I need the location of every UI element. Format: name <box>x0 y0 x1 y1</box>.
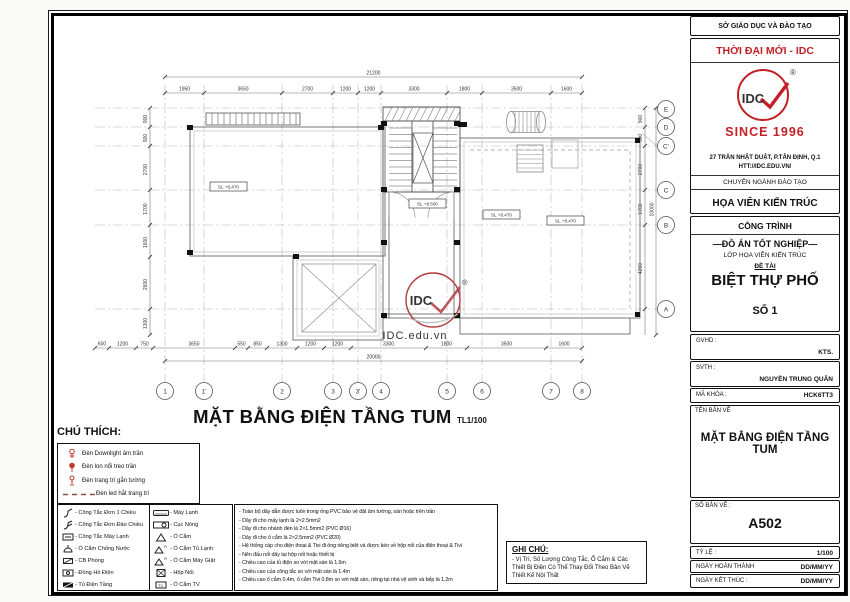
level-label: SL +8.500 <box>417 201 438 206</box>
legend-row: Đèn lon nổi treo trần <box>62 461 199 475</box>
svg-text:IDC: IDC <box>742 91 765 106</box>
titleblock-svth: SVTH : NGUYỄN TRUNG QUÂN <box>690 361 840 387</box>
washer-socket-icon: R <box>153 556 170 566</box>
dim: 1700 <box>143 203 149 214</box>
electric-meter-icon <box>61 568 75 578</box>
waterproof-socket-icon <box>61 544 75 554</box>
dim: 3500 <box>511 87 522 93</box>
legend-row: R- Ổ Cắm Tủ Lạnh <box>153 543 232 555</box>
dim: 1300 <box>276 342 287 348</box>
titleblock-dept: SỞ GIÁO DỤC VÀ ĐÀO TẠO <box>690 16 840 36</box>
grid-bubble: D <box>664 125 669 132</box>
floor-plan: IDC.edu.vn 21200 1950 3650 2700 1200 120… <box>50 60 686 405</box>
floor-panel-icon <box>61 580 75 590</box>
level-label: SL +8.470 <box>218 184 239 189</box>
legend-row: R- Ổ Cắm Máy Giặt <box>153 555 232 567</box>
dim: 2700 <box>638 164 644 175</box>
idc-stamp: IDC ® <box>406 273 468 327</box>
note-line: - Dây đi cho nhánh đèn là 2×1.5mm2 (PVC … <box>239 525 493 534</box>
legend-row: - Tủ Điện Tầng <box>61 579 149 591</box>
sheetname-label: TÊN BẢN VẼ <box>691 406 839 414</box>
scale-value: 1/100 <box>817 550 833 557</box>
level-labels: SL +8.470 SL +8.500 SL +8.470 SL +8.470 <box>210 182 584 225</box>
grid-bubble: C <box>664 188 669 195</box>
titleblock-scale: TỶ LỆ : 1/100 <box>690 546 840 559</box>
legend-row: - Ổ Cắm Chống Nước <box>61 543 149 555</box>
sheetname-value: MẶT BẰNG ĐIỆN TẦNG TUM <box>691 414 839 456</box>
level-label: SL +8.470 <box>491 212 512 217</box>
dim: 1600 <box>561 87 572 93</box>
note-line: - Toàn bộ dây dẫn được luồn trong ống PV… <box>239 508 493 517</box>
legend-title: CHÚ THÍCH: <box>57 426 121 438</box>
date2-value: DD/MM/YY <box>801 578 834 585</box>
dim-right-total: 10000 <box>650 202 656 216</box>
legend-row: Đèn trang trí gắn tường <box>62 474 199 488</box>
grid-bubble: C' <box>663 144 669 151</box>
stair-hatch <box>385 107 460 121</box>
legend-label: - Hộp Nối <box>170 570 194 576</box>
legend-label: - Ổ Cắm Chống Nước <box>75 546 130 552</box>
legend-devices: - Công Tắc Đơn 1 Chiều - Công Tắc Đơn Đả… <box>57 504 233 591</box>
legend-label: - Công Tắc Đơn Đảo Chiều <box>75 522 143 528</box>
brand-title: THỜI ĐẠI MỚI - IDC <box>691 39 839 63</box>
legend-label: - Tủ Điện Tầng <box>75 582 112 588</box>
dim: 3300 <box>383 342 394 348</box>
svth-label: SVTH : <box>696 365 715 371</box>
legend-label: - Công Tắc Đơn 1 Chiều <box>75 510 136 516</box>
sheetno-value: A502 <box>691 509 839 531</box>
note-line: - Chiều cao ổ cắm 0,4m, ổ cắm Tivi 0.8m … <box>239 576 493 585</box>
led-strip-icon <box>62 489 96 500</box>
svg-text:TV: TV <box>158 583 163 588</box>
titleblock-sheetno: SỐ BẢN VẼ : A502 <box>690 500 840 544</box>
dim: 850 <box>253 342 262 348</box>
dim: 3500 <box>501 342 512 348</box>
note-line: - Nên đấu nối dây tại hộp nối hoặc thiết… <box>239 551 493 560</box>
note-line: - Hệ thống cáp cho điện thoại & Tivi đi … <box>239 542 493 551</box>
legend-row: - Công Tắc Đơn 1 Chiều <box>61 507 149 519</box>
grid-bubble: 2 <box>280 389 284 396</box>
date1-value: DD/MM/YY <box>801 564 834 571</box>
sheetno-label: SỐ BẢN VẼ : <box>691 501 839 509</box>
wall-lamp-icon <box>62 475 82 486</box>
stamp-text: IDC <box>410 293 433 308</box>
dim: 750 <box>140 342 149 348</box>
legend-devices-col2: - Máy Lạnh - Cục Nóng - Ổ Cắm R- Ổ Cắm T… <box>149 505 232 590</box>
major-name: HỌA VIÊN KIẾN TRÚC <box>691 190 839 209</box>
ac-outdoor-icon <box>153 520 170 530</box>
dim: 1200 <box>117 342 128 348</box>
led-dashed-line <box>470 150 630 308</box>
legend-label: - Máy Lạnh <box>170 510 198 516</box>
circuit-breaker-icon <box>61 556 75 566</box>
legend-row: - Đồng Hồ Điện <box>61 567 149 579</box>
switch-2way-icon <box>61 520 75 530</box>
ladder <box>517 140 578 172</box>
ghichu-box: GHI CHÚ: - Vị Trí, Số Lượng Công Tắc, Ổ … <box>506 541 647 584</box>
legend-label: - Ổ Cắm Máy Giặt <box>170 558 215 564</box>
date2-label: NGÀY KẾT THÚC : <box>696 578 748 584</box>
idc-logo: IDC ® <box>691 63 839 125</box>
fridge-socket-icon: R <box>153 544 170 554</box>
svg-text:R: R <box>164 556 167 561</box>
dim: 1200 <box>332 342 343 348</box>
ghichu-body: - Vị Trí, Số Lượng Công Tắc, Ổ Cắm & Các… <box>507 555 646 581</box>
dim: 2700 <box>143 164 149 175</box>
plan-title-text: MẶT BẰNG ĐIỆN TẦNG TUM <box>193 406 451 427</box>
note-line: - Dây đi cho máy lạnh là 2×2.5mm2 <box>239 517 493 526</box>
topic-name: BIỆT THỰ PHỐ <box>691 270 839 289</box>
idc-logo-icon: IDC ® <box>691 63 839 125</box>
grid-bubble: 6 <box>480 389 484 396</box>
legend-row: - CB Phòng <box>61 555 149 567</box>
grid-bubbles-rows: E D C' C B A <box>658 101 675 318</box>
dim: 1800 <box>459 87 470 93</box>
grid-bubble: 4 <box>379 389 383 396</box>
legend-label: - CB Phòng <box>75 558 104 564</box>
skylight <box>302 264 376 332</box>
socket-icon <box>153 532 170 542</box>
dept-label: SỞ GIÁO DỤC VÀ ĐÀO TẠO <box>718 23 811 30</box>
legend-label: Đèn led hắt trang trí <box>96 491 149 497</box>
dim: 1200 <box>364 87 375 93</box>
dim: 1200 <box>340 87 351 93</box>
ac-switch-icon <box>61 532 75 542</box>
dim-bottom-total: 20000 <box>367 355 381 361</box>
project-label: CÔNG TRÌNH <box>691 217 839 235</box>
major-label: CHUYÊN NGÀNH ĐÀO TẠO <box>691 176 839 190</box>
water-tank <box>507 112 546 133</box>
since-label: SINCE 1996 <box>691 125 839 139</box>
legend-label: - Ổ Cắm Tủ Lạnh <box>170 546 213 552</box>
drawing-sheet: { "titleblock": { "dept": "SỞ GIÁO DỤC V… <box>0 0 850 602</box>
grid-bubbles-columns: 1 1' 2 3 3' 4 5 6 7 8 <box>157 383 591 400</box>
dimension-texts: 21200 1950 3650 2700 1200 1200 3300 1800… <box>98 71 656 361</box>
svth-value: NGUYỄN TRUNG QUÂN <box>759 376 833 383</box>
dim: 2700 <box>302 87 313 93</box>
code-value: HCK6TT3 <box>804 392 833 399</box>
legend-row: - Cục Nóng <box>153 519 232 531</box>
legend-label: - Đồng Hồ Điện <box>75 570 114 576</box>
legend-row: - Hộp Nối <box>153 567 232 579</box>
ghichu-title: GHI CHÚ: <box>507 542 646 555</box>
grid-bubble: A <box>664 307 669 314</box>
legend-row: - Công Tắc Máy Lạnh <box>61 531 149 543</box>
dim: 1800 <box>441 342 452 348</box>
level-label: SL +8.470 <box>555 218 576 223</box>
stamp-registered-icon: ® <box>462 278 468 287</box>
legend-row: Đèn led hắt trang trí <box>62 488 199 502</box>
note-line: - Dây đi cho ổ cắm là 2×2.5mm2 (PVC Ø20) <box>239 534 493 543</box>
dim: 500 <box>143 134 149 143</box>
grid-bubble: 5 <box>445 389 449 396</box>
titleblock-date1: NGÀY HOÀN THÀNH DD/MM/YY <box>690 560 840 573</box>
railing-ticks <box>212 113 296 125</box>
dim: 1700 <box>638 203 644 214</box>
plan-title-scale: TL1/100 <box>457 416 487 425</box>
titleblock-date2: NGÀY KẾT THÚC : DD/MM/YY <box>690 574 840 588</box>
tv-socket-icon: TV <box>153 580 170 590</box>
legend-row: Đèn Downlight âm trần <box>62 447 199 461</box>
dim: 3300 <box>408 87 419 93</box>
gvhd-label: GVHD : <box>696 338 717 344</box>
notes-box: - Toàn bộ dây dẫn được luồn trong ống PV… <box>234 504 498 591</box>
dim: 4200 <box>638 263 644 274</box>
plan-title: MẶT BẰNG ĐIỆN TẦNG TUM TL1/100 <box>140 406 540 428</box>
legend-label: - Ổ Cắm <box>170 534 191 540</box>
dim: 1200 <box>305 342 316 348</box>
legend-row: - Máy Lạnh <box>153 507 232 519</box>
dim: 900 <box>143 115 149 124</box>
date1-label: NGÀY HOÀN THÀNH <box>696 564 754 570</box>
project-type: —ĐỒ ÁN TỐT NGHIỆP— <box>691 235 839 249</box>
class-line: LỚP HỌA VIÊN KIẾN TRÚC <box>691 249 839 259</box>
topic-label: ĐỀ TÀI <box>691 259 839 270</box>
ac-indoor-icon <box>153 508 170 518</box>
grid-bubble: E <box>664 107 669 114</box>
address-line1: 27 TRẦN NHẬT DUẬT, P.TÂN ĐỊNH, Q.1 <box>691 155 839 161</box>
ceiling-lamp-icon <box>62 462 82 473</box>
svg-text:R: R <box>164 544 167 549</box>
titleblock-code: MÃ KHÓA : HCK6TT3 <box>690 388 840 403</box>
dim: 1600 <box>558 342 569 348</box>
code-label: MÃ KHÓA : <box>696 392 727 398</box>
dim: 2600 <box>143 279 149 290</box>
junction-box-icon <box>153 568 170 578</box>
grid-bubble: B <box>664 223 668 230</box>
legend-row: - Công Tắc Đơn Đảo Chiều <box>61 519 149 531</box>
note-line: - Chiều cao của công tắc so với mặt sàn … <box>239 568 493 577</box>
downlight-icon <box>62 448 82 459</box>
titleblock-gvhd: GVHD : KTS. <box>690 334 840 360</box>
grid-bubble: 1' <box>202 389 207 396</box>
legend-devices-col1: - Công Tắc Đơn 1 Chiều - Công Tắc Đơn Đả… <box>58 505 149 590</box>
legend-label: Đèn trang trí gắn tường <box>82 478 145 484</box>
dim: 1950 <box>179 87 190 93</box>
legend-label: Đèn Downlight âm trần <box>82 451 143 457</box>
titleblock-project: CÔNG TRÌNH —ĐỒ ÁN TỐT NGHIỆP— LỚP HỌA VI… <box>690 216 840 332</box>
grid-bubble: 7 <box>549 389 553 396</box>
grid-bubble: 3 <box>331 389 335 396</box>
address-line2: HTT://IDC.EDU.VN/ <box>691 164 839 176</box>
dim: 550 <box>237 342 246 348</box>
scale-label: TỶ LỆ : <box>696 550 716 556</box>
dim: 1600 <box>143 237 149 248</box>
grid-bubble: 1 <box>163 389 167 396</box>
legend-label: - Công Tắc Máy Lạnh <box>75 534 129 540</box>
legend-label: - Ổ Cắm TV <box>170 582 200 588</box>
note-line: - Chiều cao của tủ điện so với mặt sàn l… <box>239 559 493 568</box>
grid-lines <box>95 85 657 382</box>
dim: 600 <box>98 342 107 348</box>
svg-text:®: ® <box>790 68 796 77</box>
grid-bubble: 3' <box>356 389 361 396</box>
grid-bubble: 8 <box>580 389 584 396</box>
dim: 1300 <box>143 318 149 329</box>
dim: 900 <box>638 115 644 124</box>
titleblock-logo: THỜI ĐẠI MỚI - IDC IDC ® SINCE 1996 27 T… <box>690 38 840 214</box>
titleblock-sheetname: TÊN BẢN VẼ MẶT BẰNG ĐIỆN TẦNG TUM <box>690 405 840 498</box>
legend-lamps: Đèn Downlight âm trần Đèn lon nổi treo t… <box>57 443 200 504</box>
watermark: IDC.edu.vn <box>382 330 447 342</box>
dim: 3650 <box>237 87 248 93</box>
project-number: SỐ 1 <box>691 289 839 317</box>
switch-1way-icon <box>61 508 75 518</box>
legend-row: TV- Ổ Cắm TV <box>153 579 232 591</box>
gvhd-value: KTS. <box>818 349 833 356</box>
dim: 3650 <box>188 342 199 348</box>
dim-top-total: 21200 <box>367 71 381 77</box>
legend-label: Đèn lon nổi treo trần <box>82 464 136 470</box>
legend-label: - Cục Nóng <box>170 522 198 528</box>
legend-row: - Ổ Cắm <box>153 531 232 543</box>
